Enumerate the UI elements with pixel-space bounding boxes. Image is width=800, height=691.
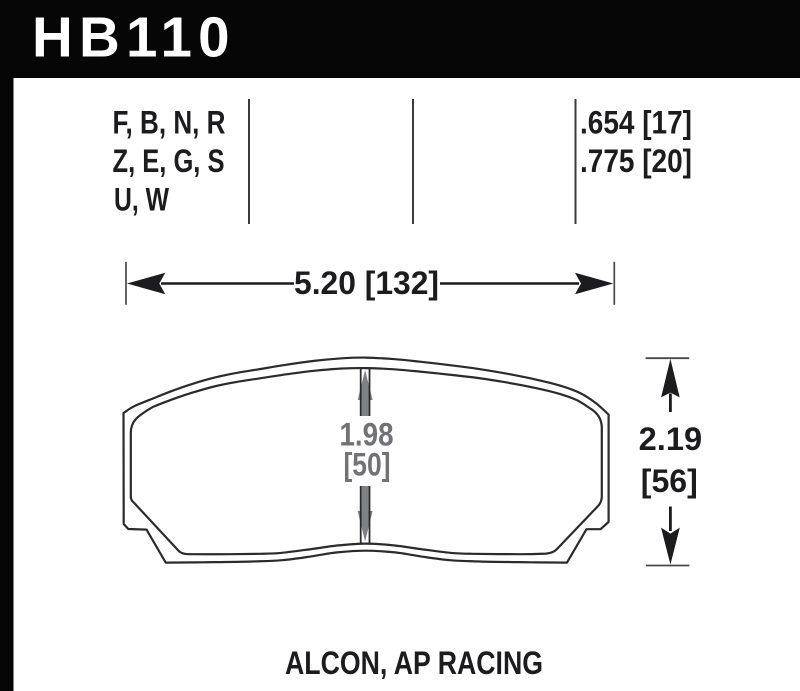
svg-text:Z, E, G, S: Z, E, G, S [113,143,225,179]
svg-text:5.20 [132]: 5.20 [132] [294,265,439,301]
svg-text:[50]: [50] [344,447,391,483]
svg-text:2.19: 2.19 [639,421,703,457]
svg-text:.775 [20]: .775 [20] [580,143,692,179]
svg-text:U, W: U, W [114,182,169,218]
svg-text:F, B, N, R: F, B, N, R [113,105,226,141]
svg-text:.654 [17]: .654 [17] [580,105,692,141]
svg-text:HB110: HB110 [32,6,236,69]
svg-text:[56]: [56] [641,463,698,499]
svg-text:ALCON, AP RACING: ALCON, AP RACING [285,645,543,681]
